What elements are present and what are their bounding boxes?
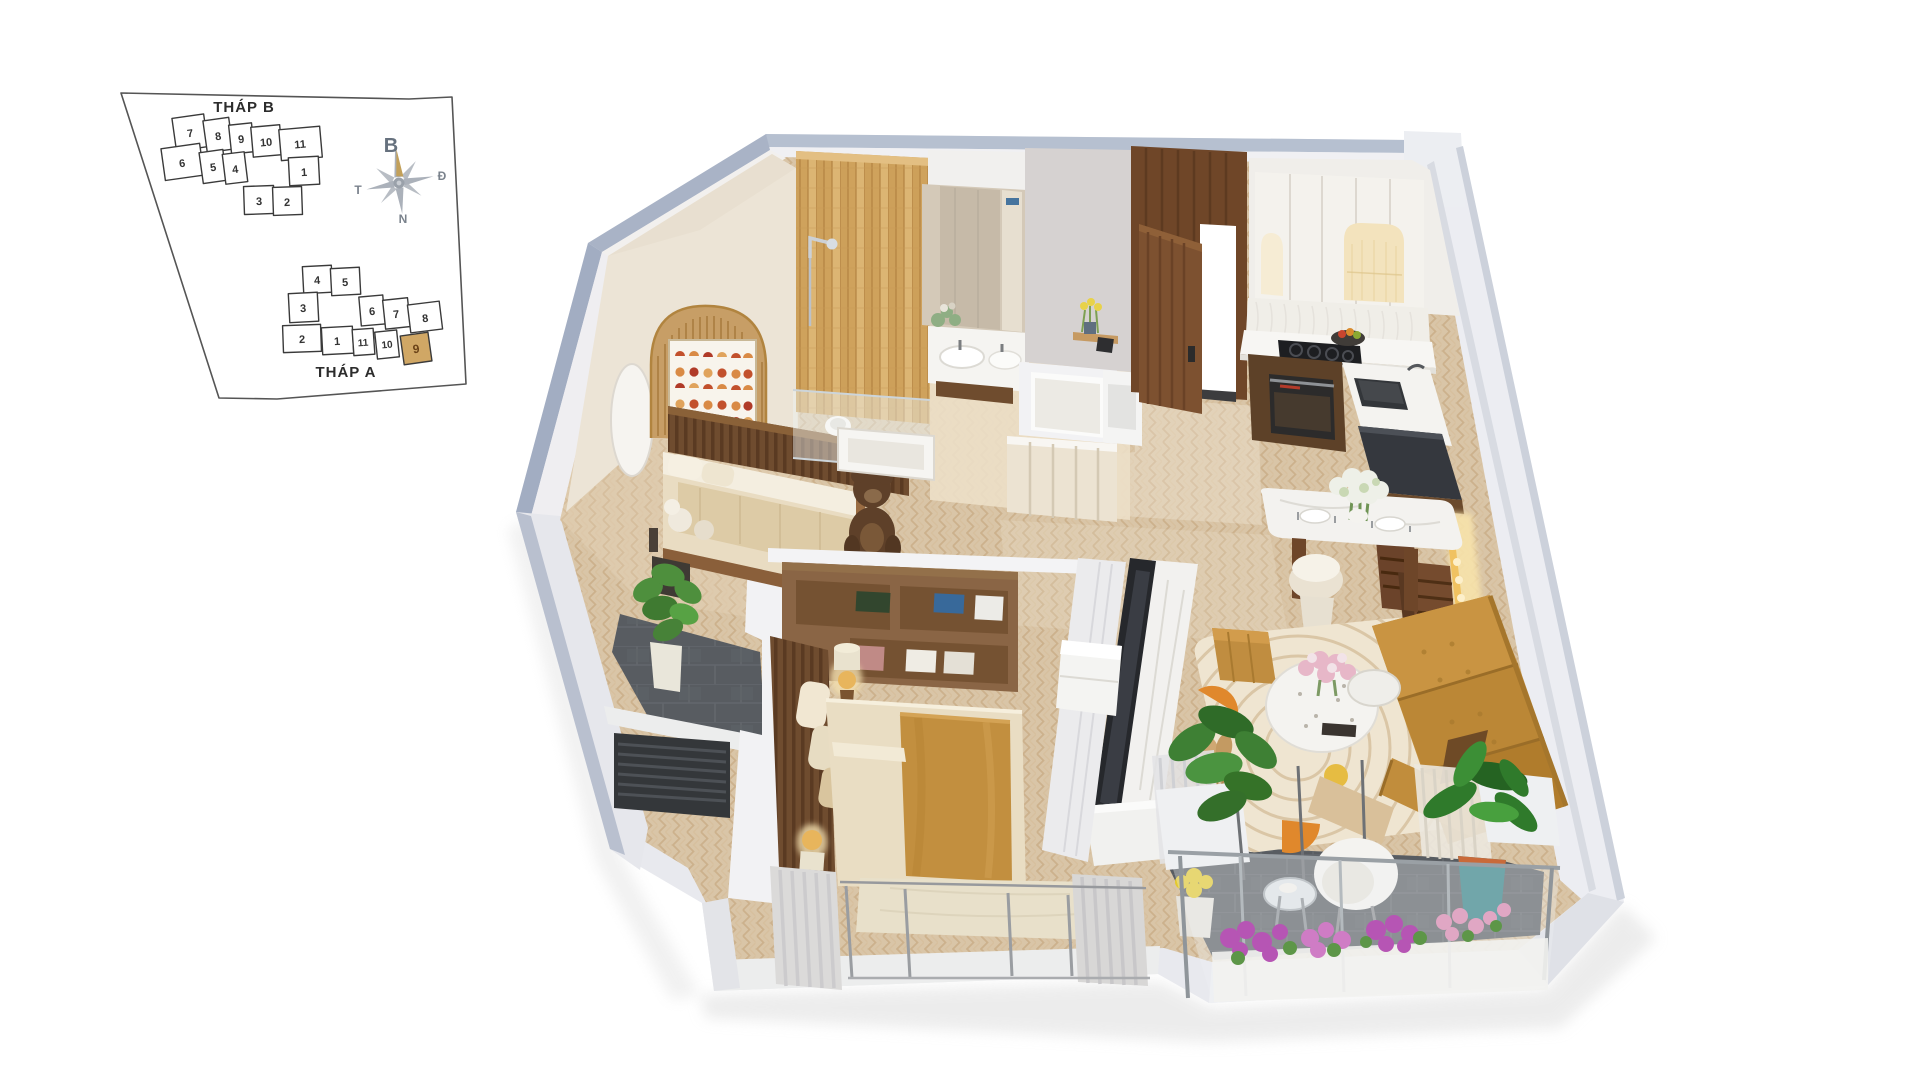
svg-text:9: 9	[238, 134, 245, 147]
svg-text:3: 3	[256, 196, 263, 208]
svg-text:2: 2	[284, 197, 291, 209]
svg-text:10: 10	[381, 339, 394, 351]
svg-text:2: 2	[299, 334, 306, 346]
svg-text:Đ: Đ	[438, 169, 447, 183]
svg-text:B: B	[384, 135, 398, 157]
svg-text:11: 11	[294, 139, 307, 152]
svg-text:10: 10	[260, 136, 273, 149]
svg-text:5: 5	[342, 277, 349, 289]
svg-text:11: 11	[357, 338, 369, 350]
svg-text:T: T	[354, 183, 362, 197]
svg-text:3: 3	[300, 303, 307, 315]
svg-text:THÁP A: THÁP A	[315, 364, 376, 381]
svg-text:THÁP B: THÁP B	[213, 99, 275, 116]
svg-text:6: 6	[369, 306, 376, 318]
svg-text:1: 1	[334, 336, 341, 348]
svg-text:1: 1	[301, 167, 308, 179]
svg-text:N: N	[399, 212, 408, 226]
svg-text:7: 7	[393, 309, 400, 322]
